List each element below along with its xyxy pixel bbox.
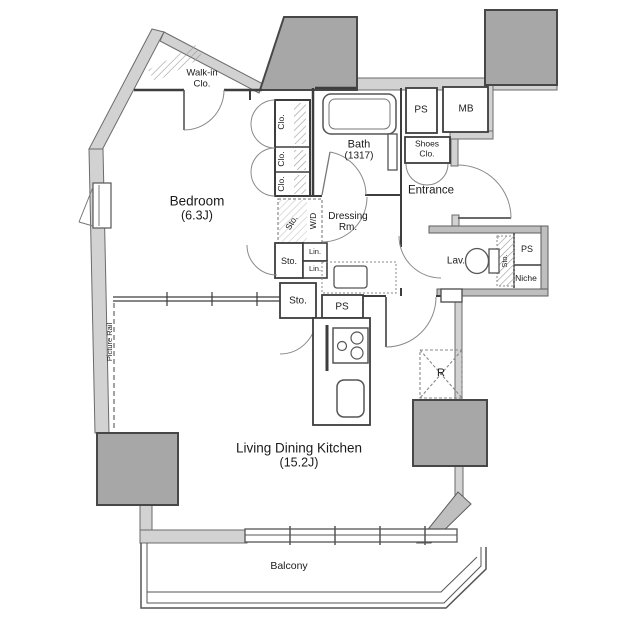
walkin-door-arc: [184, 90, 224, 130]
storage-bedroom-door-arc: [247, 245, 277, 275]
niche-label: Niche: [515, 274, 537, 284]
bedroom-label: Bedroom (6.3J): [170, 193, 225, 222]
lavatory-door-arc: [399, 236, 441, 278]
storage-hall-door-arc: [280, 318, 316, 354]
utility-storage: [247, 197, 396, 293]
closet-bifold-doors: [251, 100, 275, 196]
mail-box-label: MB: [459, 103, 474, 114]
storage-lav-label: Sto.: [501, 254, 509, 267]
pillar-top-left: [260, 17, 357, 90]
floor-plan: Walk-in Clo. Bedroom (6.3J) Clo. Clo. Cl…: [0, 0, 640, 640]
kitchen: [313, 318, 370, 425]
balcony-rail: [141, 543, 486, 608]
walkin-closet-label: Walk-in Clo.: [186, 68, 217, 89]
lavatory-label: Lav.: [447, 255, 465, 266]
stove: [333, 328, 368, 363]
refrigerator-label: R: [437, 367, 445, 379]
entrance-label: Entrance: [408, 185, 454, 198]
ps-kitchen-label: PS: [335, 301, 348, 312]
kitchen-sink: [337, 380, 364, 417]
closet2-label: Clo.: [277, 151, 287, 166]
linen1-label: Lin.: [309, 248, 321, 256]
floor-plan-drawing: [0, 0, 640, 640]
closet3-label: Clo.: [277, 176, 287, 191]
lavatory-step: [441, 289, 462, 302]
shoes-bifold-doors: [406, 164, 448, 185]
shoes-closet-label: Shoes Clo.: [415, 139, 439, 158]
bedroom-window: [93, 183, 111, 228]
bath-counter: [388, 134, 397, 170]
pillar-bottom-left: [97, 433, 178, 505]
storage-bedroom-label: Sto.: [281, 256, 297, 266]
balcony-label: Balcony: [270, 561, 307, 573]
pillar-mid-right: [413, 400, 487, 466]
ldk-label: Living Dining Kitchen (15.2J): [236, 440, 362, 469]
picture-rail-label: Picture Rail: [106, 323, 114, 361]
storage-hall-label: Sto.: [289, 295, 307, 306]
ps-lav-label: PS: [521, 244, 533, 254]
bath-label: Bath (1317): [345, 138, 374, 162]
ldk-door-arc: [386, 297, 436, 347]
ps-shaft-label: PS: [414, 104, 427, 115]
entrance-door-arc: [458, 165, 511, 218]
linen2-label: Lin.: [309, 265, 321, 273]
pillar-top-right: [485, 10, 557, 85]
washer-dryer-label: W/D: [309, 213, 319, 230]
wash-basin: [334, 266, 367, 288]
dressing-room-label: Dressing Rm.: [328, 211, 367, 233]
toilet: [466, 249, 489, 274]
closet1-label: Clo.: [277, 114, 287, 129]
